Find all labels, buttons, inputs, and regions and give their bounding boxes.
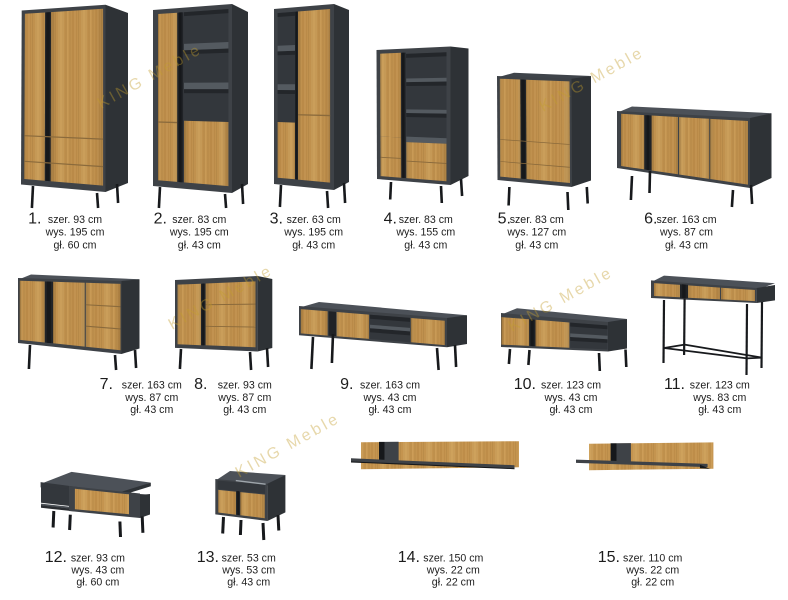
svg-text:wys. 43 cm: wys. 43 cm bbox=[544, 392, 598, 404]
svg-text:szer. 53 cm: szer. 53 cm bbox=[222, 553, 276, 565]
svg-text:szer. 123 cm: szer. 123 cm bbox=[541, 380, 601, 392]
svg-text:szer. 83 cm: szer. 83 cm bbox=[510, 214, 564, 226]
svg-text:szer. 93 cm: szer. 93 cm bbox=[71, 553, 125, 565]
svg-text:wys. 127 cm: wys. 127 cm bbox=[506, 227, 566, 239]
svg-text:9.: 9. bbox=[340, 376, 353, 393]
svg-text:3.: 3. bbox=[270, 210, 283, 227]
svg-text:wys. 43 cm: wys. 43 cm bbox=[70, 565, 124, 577]
svg-text:gł. 43 cm: gł. 43 cm bbox=[698, 404, 741, 416]
svg-text:gł. 43 cm: gł. 43 cm bbox=[292, 239, 335, 251]
svg-text:szer. 163 cm: szer. 163 cm bbox=[656, 214, 716, 226]
svg-text:szer. 123 cm: szer. 123 cm bbox=[690, 380, 750, 392]
svg-text:15.: 15. bbox=[598, 549, 620, 566]
svg-text:szer. 163 cm: szer. 163 cm bbox=[360, 380, 420, 392]
svg-text:gł. 43 cm: gł. 43 cm bbox=[665, 239, 708, 251]
svg-text:2.: 2. bbox=[154, 210, 167, 227]
svg-text:wys. 87 cm: wys. 87 cm bbox=[217, 392, 271, 404]
svg-text:gł. 43 cm: gł. 43 cm bbox=[404, 239, 447, 251]
svg-text:szer. 163 cm: szer. 163 cm bbox=[122, 380, 182, 392]
svg-text:7.: 7. bbox=[100, 376, 113, 393]
svg-text:gł. 43 cm: gł. 43 cm bbox=[515, 239, 558, 251]
svg-text:12.: 12. bbox=[45, 549, 67, 566]
svg-text:wys. 195 cm: wys. 195 cm bbox=[45, 227, 105, 239]
svg-text:wys. 155 cm: wys. 155 cm bbox=[395, 227, 455, 239]
svg-text:szer. 83 cm: szer. 83 cm bbox=[172, 214, 226, 226]
svg-text:wys. 87 cm: wys. 87 cm bbox=[659, 227, 713, 239]
svg-text:gł. 60 cm: gł. 60 cm bbox=[54, 239, 97, 251]
svg-text:gł. 43 cm: gł. 43 cm bbox=[227, 577, 270, 589]
svg-text:szer. 83 cm: szer. 83 cm bbox=[399, 214, 453, 226]
svg-text:gł. 43 cm: gł. 43 cm bbox=[130, 404, 173, 416]
svg-text:gł. 22 cm: gł. 22 cm bbox=[631, 577, 674, 589]
svg-text:11.: 11. bbox=[664, 376, 685, 393]
svg-text:wys. 22 cm: wys. 22 cm bbox=[625, 565, 679, 577]
svg-text:wys. 195 cm: wys. 195 cm bbox=[169, 227, 229, 239]
svg-text:wys. 53 cm: wys. 53 cm bbox=[221, 565, 275, 577]
svg-text:14.: 14. bbox=[398, 549, 420, 566]
svg-text:gł. 43 cm: gł. 43 cm bbox=[223, 404, 266, 416]
svg-text:gł. 43 cm: gł. 43 cm bbox=[369, 404, 412, 416]
svg-text:wys. 195 cm: wys. 195 cm bbox=[283, 227, 343, 239]
svg-text:4.: 4. bbox=[384, 210, 397, 227]
svg-text:wys. 83 cm: wys. 83 cm bbox=[692, 392, 746, 404]
svg-text:szer. 150 cm: szer. 150 cm bbox=[423, 553, 483, 565]
svg-text:szer. 93 cm: szer. 93 cm bbox=[218, 380, 272, 392]
svg-text:8.: 8. bbox=[194, 376, 207, 393]
svg-text:szer. 93 cm: szer. 93 cm bbox=[48, 214, 102, 226]
svg-text:gł. 60 cm: gł. 60 cm bbox=[76, 577, 119, 589]
svg-text:szer. 63 cm: szer. 63 cm bbox=[287, 214, 341, 226]
svg-text:wys. 43 cm: wys. 43 cm bbox=[363, 392, 417, 404]
svg-text:wys. 87 cm: wys. 87 cm bbox=[124, 392, 178, 404]
svg-text:szer. 110 cm: szer. 110 cm bbox=[623, 553, 682, 565]
svg-text:gł. 22 cm: gł. 22 cm bbox=[432, 577, 475, 589]
svg-text:13.: 13. bbox=[197, 549, 219, 566]
svg-text:gł. 43 cm: gł. 43 cm bbox=[178, 239, 221, 251]
svg-text:10.: 10. bbox=[514, 376, 536, 393]
svg-text:1.: 1. bbox=[28, 210, 41, 227]
svg-text:gł. 43 cm: gł. 43 cm bbox=[550, 404, 593, 416]
svg-text:wys. 22 cm: wys. 22 cm bbox=[426, 565, 480, 577]
